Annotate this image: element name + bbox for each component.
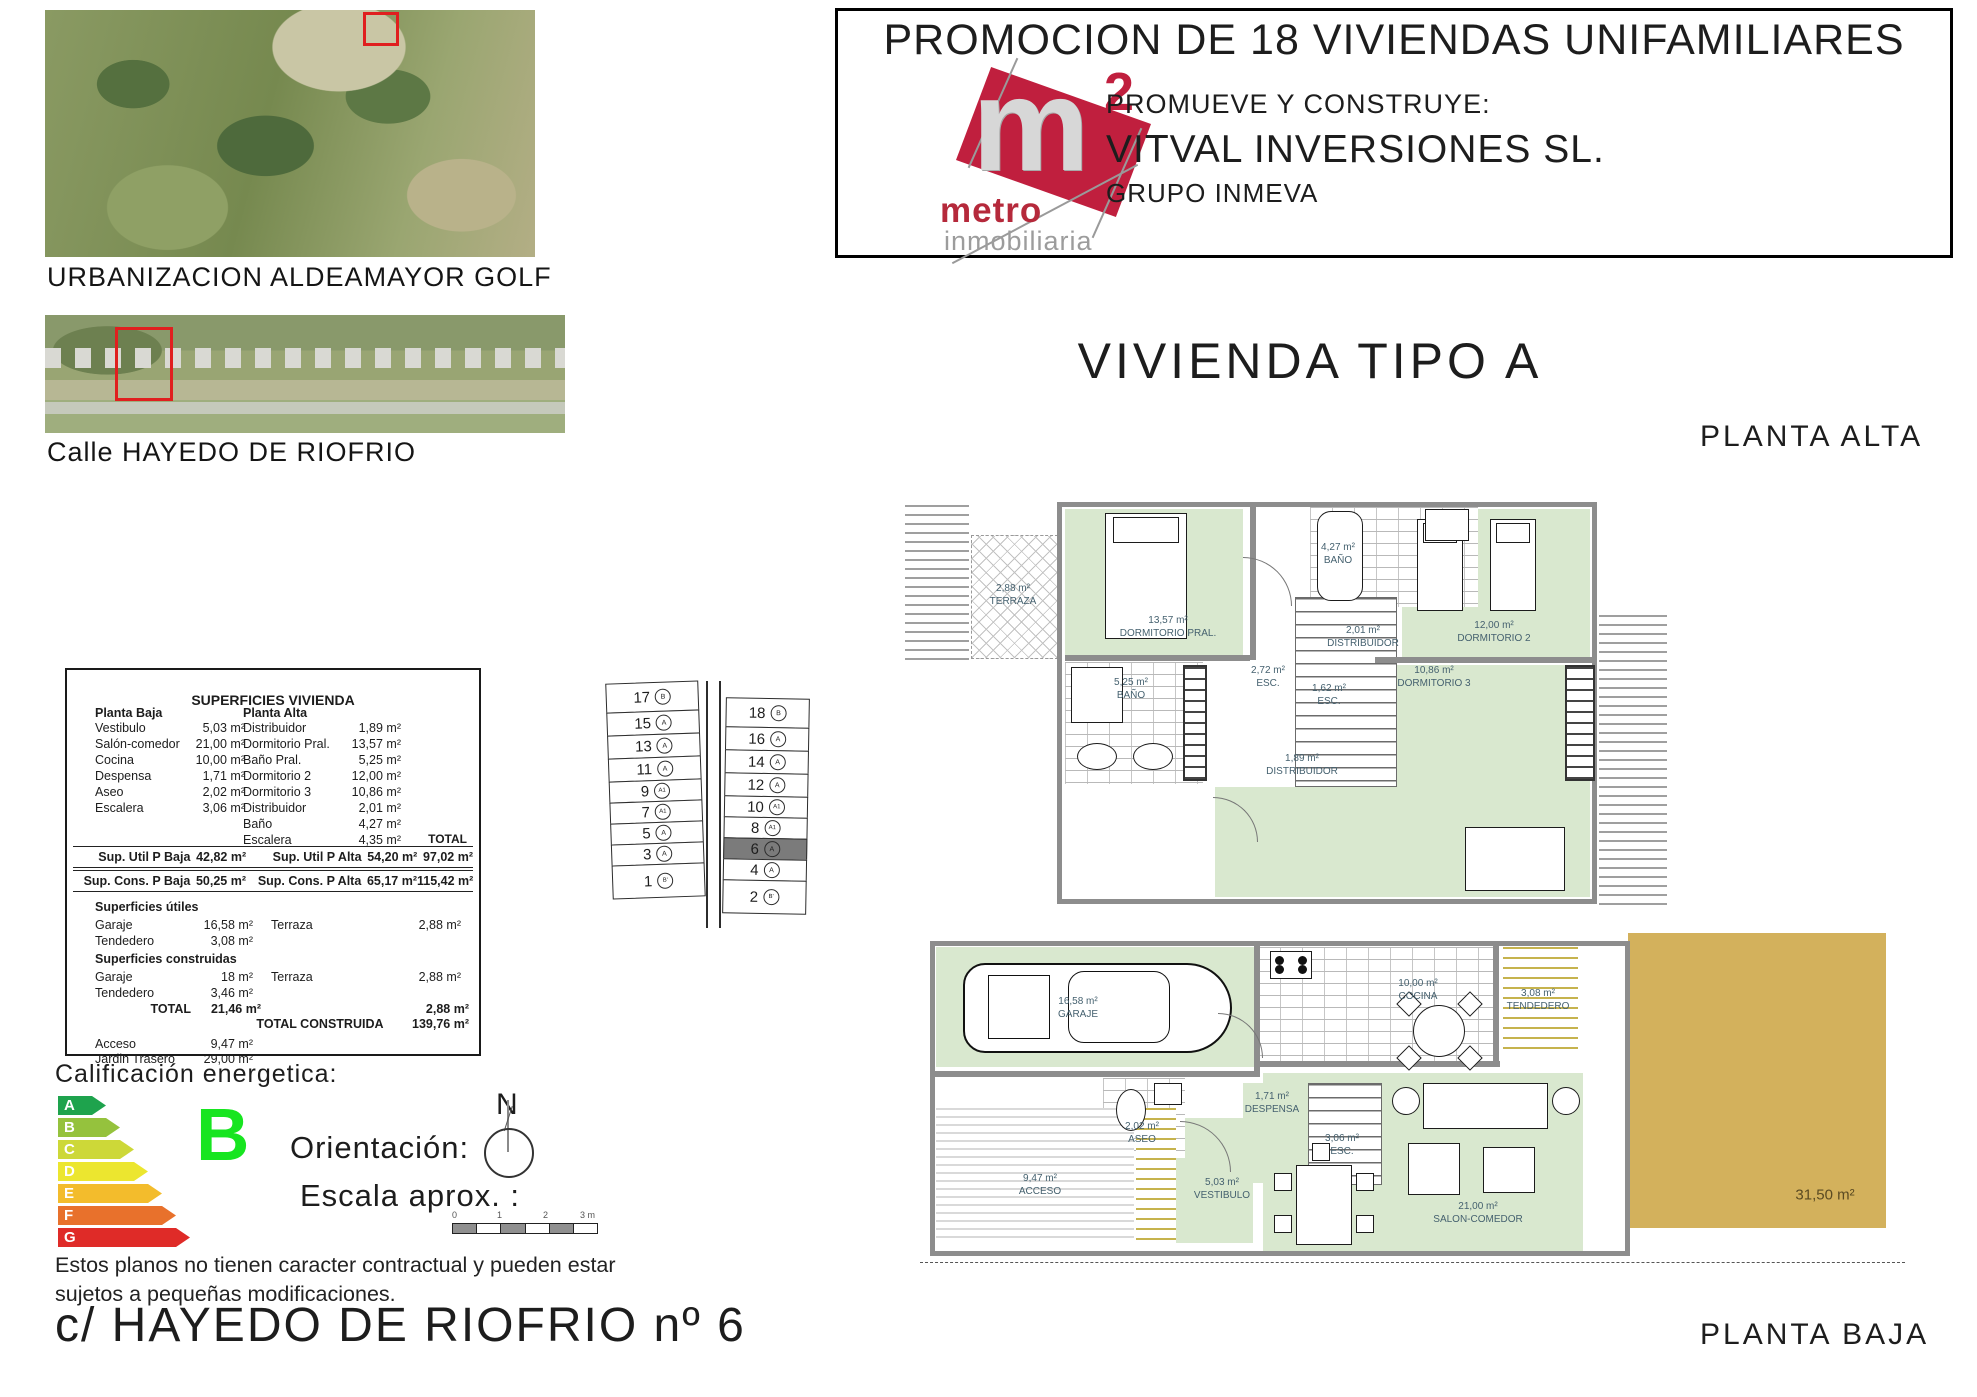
- energy-rating-letter: B: [196, 1098, 249, 1172]
- roof-hatch: [1599, 615, 1667, 905]
- chair-icon: [1274, 1173, 1292, 1191]
- lot-number: 7: [641, 804, 650, 821]
- table-right-value: 10,86 m²: [352, 784, 401, 800]
- util-left-label: Sup. Util P Baja: [73, 848, 190, 866]
- total-value: 21,46 m²: [199, 1001, 261, 1017]
- acceso-row: Acceso 9,47 m²: [95, 1036, 469, 1052]
- cons-left-label: Sup. Cons. P Baja: [73, 872, 190, 890]
- total-label: TOTAL: [95, 1001, 199, 1017]
- construidas-tendedero-label: Tendedero: [95, 985, 191, 1001]
- room-area-value: 21,00 m²: [1433, 1200, 1522, 1213]
- room-name: ESC.: [1325, 1145, 1359, 1158]
- lot-type-badge: B: [770, 705, 786, 721]
- pillow-icon: [1113, 517, 1179, 543]
- utiles-tendedero-label: Tendedero: [95, 933, 191, 949]
- armchair-icon: [1408, 1143, 1460, 1195]
- room-area-value: 1,62 m²: [1312, 682, 1346, 695]
- lot-number: 12: [747, 776, 764, 793]
- lot-type-badge: B: [655, 688, 672, 705]
- compass-icon: [484, 1128, 534, 1178]
- lots-right-column: 18B16A14A12A10A18A16A4A2B': [722, 698, 810, 914]
- coffee-table-icon: [1483, 1147, 1535, 1193]
- table-right-value: 12,00 m²: [352, 768, 401, 784]
- chair-icon: [1274, 1215, 1292, 1233]
- lot-number: 6: [750, 840, 759, 857]
- lot-type-badge: A: [657, 760, 674, 777]
- room-label-aseo: 2,02 m²ASEO: [1125, 1120, 1159, 1146]
- room-name: DESPENSA: [1245, 1103, 1299, 1116]
- room-name: GARAJE: [1058, 1008, 1098, 1021]
- toilet-icon: [1077, 743, 1117, 770]
- room-name: ASEO: [1125, 1133, 1159, 1146]
- lot-cell-12: 12A: [724, 772, 808, 797]
- construidas-terraza-value: 2,88 m²: [391, 969, 461, 985]
- room-area-value: 2,88 m²: [990, 582, 1037, 595]
- table-right-row: Distribuidor2,01 m²: [243, 800, 401, 816]
- spacer: [253, 1036, 391, 1052]
- photo1-caption: URBANIZACION ALDEAMAYOR GOLF: [47, 262, 552, 293]
- lot-type-badge: B': [763, 889, 779, 905]
- energy-band-F: F: [58, 1206, 176, 1225]
- room-label-esc-: 3,06 m²ESC.: [1325, 1132, 1359, 1158]
- spacer: [253, 933, 391, 949]
- room-name: DORMITORIO 3: [1397, 677, 1470, 690]
- table-right-row: Dormitorio 310,86 m²: [243, 784, 401, 800]
- energy-rating-title: Calificación energetica:: [55, 1060, 337, 1089]
- planta-alta-label: PLANTA ALTA: [1700, 420, 1923, 454]
- room-name: TERRAZA: [990, 595, 1037, 608]
- lot-cell-2: 2B': [722, 879, 807, 914]
- utiles-heading: Superficies útiles: [95, 900, 199, 914]
- table-left-label: Escalera: [95, 800, 144, 816]
- highlight-box-plot: [363, 12, 399, 46]
- util-right-label: Sup. Util P Alta: [246, 848, 361, 866]
- sink-icon: [1425, 509, 1469, 541]
- utiles-row: Garaje 16,58 m² Terraza 2,88 m²: [95, 917, 469, 933]
- room-label-esc-: 2,72 m²ESC.: [1251, 664, 1285, 690]
- table-right-label: Distribuidor: [243, 720, 306, 736]
- lot-number: 14: [748, 753, 765, 770]
- room-name: ESC.: [1251, 677, 1285, 690]
- lot-cell-6: 6A: [723, 837, 807, 860]
- logo-tagline-text: inmobiliaria: [944, 226, 1093, 257]
- room-name: DISTRIBUIDOR: [1327, 637, 1399, 650]
- room-name: TENDEDERO: [1507, 1000, 1570, 1013]
- lot-number: 16: [748, 730, 765, 747]
- grand-total-label: TOTAL CONSTRUIDA: [256, 1017, 383, 1031]
- util-total-row: Sup. Util P Baja 42,82 m² Sup. Util P Al…: [73, 848, 473, 866]
- table-right-row: Baño4,27 m²: [243, 816, 401, 832]
- header-box: PROMOCION DE 18 VIVIENDAS UNIFAMILIARES …: [835, 8, 1953, 258]
- wall: [930, 1071, 1260, 1077]
- lot-cell-4: 4A: [723, 858, 807, 881]
- property-boundary-line: [920, 1262, 1905, 1263]
- table-right-value: 1,89 m²: [359, 720, 401, 736]
- room-area-value: 3,06 m²: [1325, 1132, 1359, 1145]
- planta-baja-floorplan: 16,58 m²GARAJE10,00 m²COCINA3,08 m²TENDE…: [918, 933, 1908, 1263]
- lot-number: 10: [747, 798, 764, 815]
- lot-cell-1: 1B': [612, 862, 706, 899]
- promoter-label: PROMUEVE Y CONSTRUYE:: [1106, 89, 1605, 120]
- lot-number: 1: [644, 873, 653, 890]
- room-area-value: 16,58 m²: [1058, 995, 1098, 1008]
- construidas-garaje-value: 18 m²: [191, 969, 253, 985]
- room-label-salon-comedor: 21,00 m²SALON-COMEDOR: [1433, 1200, 1522, 1226]
- cons-left-value: 50,25 m²: [190, 872, 246, 890]
- table-right-row: Distribuidor1,89 m²: [243, 720, 401, 736]
- lot-cell-18: 18B: [725, 697, 810, 728]
- construidas-row: Garaje 18 m² Terraza 2,88 m²: [95, 969, 469, 985]
- utiles-row: Tendedero 3,08 m²: [95, 933, 469, 949]
- table-left-value: 10,00 m²: [196, 752, 245, 768]
- construidas-heading: Superficies construidas: [95, 952, 237, 966]
- terraza-total-value: 2,88 m²: [399, 1001, 469, 1017]
- table-right-label: Dormitorio 3: [243, 784, 311, 800]
- scale-segment: [477, 1224, 501, 1233]
- scale-bar: 0123 m: [452, 1210, 598, 1240]
- table-left-label: Aseo: [95, 784, 124, 800]
- room-name: SALON-COMEDOR: [1433, 1213, 1522, 1226]
- room-area-value: 1,89 m²: [1266, 752, 1338, 765]
- scale-tick: 1: [497, 1210, 502, 1220]
- stove-icon: [1270, 951, 1312, 979]
- lot-number: 3: [643, 846, 652, 863]
- table-left-value: 21,00 m²: [196, 736, 245, 752]
- table-left-row: Aseo2,02 m²: [95, 784, 245, 800]
- road-line: [719, 681, 721, 928]
- divider: [73, 891, 473, 892]
- lot-number: 8: [751, 819, 760, 836]
- room-label-dormitorio-pral-: 13,57 m²DORMITORIO PRAL.: [1120, 614, 1217, 640]
- lots-left-column: 17B15A13A11A9A17A15A3A1B': [605, 681, 705, 899]
- room-label-dormitorio-3: 10,86 m²DORMITORIO 3: [1397, 664, 1470, 690]
- lot-type-badge: A1: [654, 782, 671, 799]
- table-left-value: 5,03 m²: [203, 720, 245, 736]
- dining-table-icon: [1296, 1165, 1352, 1245]
- room-label-esc-: 1,62 m²ESC.: [1312, 682, 1346, 708]
- lot-number: 4: [750, 861, 759, 878]
- lot-number: 2: [750, 888, 759, 905]
- utiles-terraza-value: 2,88 m²: [391, 917, 461, 933]
- roof-hatch: [905, 505, 969, 660]
- room-label-acceso: 9,47 m²ACCESO: [1019, 1172, 1061, 1198]
- table-left-row: Escalera3,06 m²: [95, 800, 245, 816]
- promoter-block: PROMUEVE Y CONSTRUYE: VITVAL INVERSIONES…: [1106, 89, 1605, 209]
- planta-baja-rows: Vestibulo5,03 m²Salón-comedor21,00 m²Coc…: [95, 720, 245, 816]
- room-label-vestibulo: 5,03 m²VESTIBULO: [1194, 1176, 1250, 1202]
- energy-band-D: D: [58, 1162, 148, 1181]
- bidet-icon: [1133, 743, 1173, 770]
- jardin-trasero-area: [1628, 933, 1886, 1228]
- room-label-terraza: 2,88 m²TERRAZA: [990, 582, 1037, 608]
- scale-segments: [452, 1223, 598, 1234]
- room-label-despensa: 1,71 m²DESPENSA: [1245, 1090, 1299, 1116]
- table-right-value: 5,25 m²: [359, 752, 401, 768]
- table-left-value: 3,06 m²: [203, 800, 245, 816]
- disclaimer-line1: Estos planos no tienen caracter contract…: [55, 1251, 616, 1280]
- room-name: BAÑO: [1321, 554, 1355, 567]
- logo-letter-m: m: [972, 59, 1089, 191]
- energy-band-C: C: [58, 1140, 134, 1159]
- room-label-distribuidor: 2,01 m²DISTRIBUIDOR: [1327, 624, 1399, 650]
- scale-segment: [453, 1224, 477, 1233]
- construidas-row: Tendedero 3,46 m²: [95, 985, 469, 1001]
- divider: [73, 867, 473, 868]
- table-left-row: Cocina10,00 m²: [95, 752, 245, 768]
- room-label-cocina: 10,00 m²COCINA: [1398, 977, 1437, 1003]
- table-left-value: 2,02 m²: [203, 784, 245, 800]
- lot-type-badge: A: [657, 737, 674, 754]
- lot-cell-14: 14A: [725, 749, 809, 774]
- planta-alta-rows: Distribuidor1,89 m²Dormitorio Pral.13,57…: [243, 720, 401, 848]
- lot-number: 11: [636, 761, 652, 779]
- grand-total-value: 139,76 m²: [412, 1017, 469, 1031]
- table-right-row: Dormitorio 212,00 m²: [243, 768, 401, 784]
- room-name: DISTRIBUIDOR: [1266, 765, 1338, 778]
- lot-type-badge: A: [656, 845, 673, 862]
- spacer: [391, 985, 461, 1001]
- table-right-value: 13,57 m²: [352, 736, 401, 752]
- utiles-garaje-label: Garaje: [95, 917, 191, 933]
- scale-tick: 3 m: [580, 1210, 595, 1220]
- wall: [1375, 657, 1593, 663]
- lot-cell-10: 10A1: [724, 795, 808, 818]
- lot-type-badge: A: [770, 731, 786, 747]
- photo2-caption: Calle HAYEDO DE RIOFRIO: [47, 437, 416, 468]
- wall: [1065, 655, 1250, 661]
- sofa-icon: [1423, 1083, 1548, 1129]
- sink-icon: [1154, 1083, 1182, 1105]
- aerial-photo-street: [45, 315, 565, 433]
- col-header-planta-baja: Planta Baja: [95, 706, 162, 720]
- scale-label: Escala aprox. :: [300, 1178, 520, 1214]
- room-area-value: 2,01 m²: [1327, 624, 1399, 637]
- scale-tick: 2: [543, 1210, 548, 1220]
- total-row: TOTAL 21,46 m² 2,88 m²: [95, 1001, 469, 1017]
- util-right-value: 54,20 m²: [362, 848, 418, 866]
- room-name: ESC.: [1312, 695, 1346, 708]
- lot-type-badge: A1: [764, 820, 780, 836]
- room-area-value: 10,86 m²: [1397, 664, 1470, 677]
- scale-segment: [550, 1224, 574, 1233]
- room-area-value: 1,71 m²: [1245, 1090, 1299, 1103]
- promoter-name: VITVAL INVERSIONES SL.: [1106, 128, 1605, 172]
- pillow-icon: [1496, 523, 1530, 543]
- side-table-icon: [1392, 1087, 1420, 1115]
- chair-icon: [1356, 1215, 1374, 1233]
- distribuidor2-floor: [1215, 787, 1395, 897]
- table-right-label: Dormitorio 2: [243, 768, 311, 784]
- cons-right-label: Sup. Cons. P Alta: [246, 872, 361, 890]
- table-left-row: Vestibulo5,03 m²: [95, 720, 245, 736]
- bed-icon: [1465, 827, 1565, 891]
- utiles-tendedero-value: 3,08 m²: [191, 933, 253, 949]
- table-left-label: Cocina: [95, 752, 134, 768]
- energy-band-E: E: [58, 1184, 162, 1203]
- room-area-value: 5,25 m²: [1114, 676, 1148, 689]
- highlight-box-houses: [115, 327, 173, 401]
- room-label-garaje: 16,58 m²GARAJE: [1058, 995, 1098, 1021]
- spacer: [391, 1051, 461, 1067]
- lot-type-badge: A: [764, 841, 780, 857]
- room-label-dormitorio-2: 12,00 m²DORMITORIO 2: [1457, 619, 1530, 645]
- room-name: BAÑO: [1114, 689, 1148, 702]
- lot-number: 17: [633, 689, 650, 707]
- divider: [73, 846, 473, 847]
- table-right-value: 2,01 m²: [359, 800, 401, 816]
- promoter-group: GRUPO INMEVA: [1106, 178, 1605, 209]
- room-area-value: 2,02 m²: [1125, 1120, 1159, 1133]
- closet-icon: [1183, 665, 1207, 781]
- wall: [1493, 941, 1499, 1061]
- room-label-distribuidor: 1,89 m²DISTRIBUIDOR: [1266, 752, 1338, 778]
- energy-band-B: B: [58, 1118, 120, 1137]
- lot-type-badge: A1: [769, 799, 785, 815]
- room-area-value: 2,72 m²: [1251, 664, 1285, 677]
- room-area-value: 10,00 m²: [1398, 977, 1437, 990]
- room-name: VESTIBULO: [1194, 1189, 1250, 1202]
- utiles-terraza-label: Terraza: [253, 917, 391, 933]
- energy-band-A: A: [58, 1096, 106, 1115]
- aerial-photo-urbanization: [45, 10, 535, 257]
- lot-type-badge: A1: [655, 803, 672, 820]
- lot-number: 18: [749, 704, 766, 721]
- grand-total-row: TOTAL CONSTRUIDA 139,76 m²: [256, 1017, 469, 1031]
- table-right-row: Dormitorio Pral.13,57 m²: [243, 736, 401, 752]
- lot-type-badge: A: [769, 777, 785, 793]
- spacer: [391, 1036, 461, 1052]
- divider: [73, 870, 473, 871]
- util-left-value: 42,82 m²: [190, 848, 246, 866]
- table-right-row: Baño Pral.5,25 m²: [243, 752, 401, 768]
- energy-band-chart: ABCDEFG: [58, 1096, 190, 1250]
- room-area-value: 5,03 m²: [1194, 1176, 1250, 1189]
- room-area-value: 3,08 m²: [1507, 987, 1570, 1000]
- utiles-garaje-value: 16,58 m²: [191, 917, 253, 933]
- lot-type-badge: B': [657, 872, 674, 889]
- closet-icon: [1565, 665, 1595, 781]
- orientation-label: Orientación:: [290, 1130, 469, 1166]
- surface-table: SUPERFICIES VIVIENDA Planta Baja Planta …: [65, 668, 481, 1056]
- cons-total-value: 115,42 m²: [417, 872, 473, 890]
- kitchen-table-icon: [1413, 1005, 1465, 1057]
- room-name: ACCESO: [1019, 1185, 1061, 1198]
- street-address: c/ HAYEDO DE RIOFRIO nº 6: [55, 1298, 746, 1353]
- construidas-tendedero-value: 3,46 m²: [191, 985, 253, 1001]
- side-table-icon: [1552, 1087, 1580, 1115]
- lot-type-badge: A: [769, 754, 785, 770]
- room-area-value: 13,57 m²: [1120, 614, 1217, 627]
- room-label-ba-o: 5,25 m²BAÑO: [1114, 676, 1148, 702]
- logo-brand-text: metro: [940, 191, 1042, 231]
- table-right-label: Distribuidor: [243, 800, 306, 816]
- scale-segment: [526, 1224, 550, 1233]
- room-name: COCINA: [1398, 990, 1437, 1003]
- lot-number: 15: [634, 715, 651, 733]
- acceso-label: Acceso: [95, 1036, 191, 1052]
- room-area-value: 12,00 m²: [1457, 619, 1530, 632]
- lot-cell-8: 8A1: [723, 816, 807, 839]
- cons-total-row: Sup. Cons. P Baja 50,25 m² Sup. Cons. P …: [73, 872, 473, 890]
- road-line: [706, 681, 708, 928]
- planta-alta-floorplan: 2,88 m²TERRAZA13,57 m²DORMITORIO PRAL.5,…: [905, 497, 1667, 909]
- car-trunk: [988, 975, 1050, 1039]
- site-plan-diagram: 17B15A13A11A9A17A15A3A1B' 18B16A14A12A10…: [605, 653, 810, 928]
- spacer: [391, 933, 461, 949]
- table-right-label: Baño Pral.: [243, 752, 301, 768]
- table-right-label: Baño: [243, 816, 272, 832]
- total-header: TOTAL: [428, 832, 467, 846]
- room-name: DORMITORIO 2: [1457, 632, 1530, 645]
- table-left-value: 1,71 m²: [203, 768, 245, 784]
- vivienda-title: VIVIENDA TIPO A: [1050, 332, 1570, 390]
- lot-cell-17: 17B: [605, 680, 699, 713]
- room-name: DORMITORIO PRAL.: [1120, 627, 1217, 640]
- table-left-row: Despensa1,71 m²: [95, 768, 245, 784]
- scale-tick: 0: [452, 1210, 457, 1220]
- lot-type-badge: A: [656, 714, 673, 731]
- chair-icon: [1356, 1173, 1374, 1191]
- acceso-value: 9,47 m²: [191, 1036, 253, 1052]
- lot-type-badge: A: [763, 862, 779, 878]
- table-right-label: Dormitorio Pral.: [243, 736, 330, 752]
- room-area-value: 9,47 m²: [1019, 1172, 1061, 1185]
- lot-number: 5: [642, 825, 651, 842]
- table-left-row: Salón-comedor21,00 m²: [95, 736, 245, 752]
- util-total-value: 97,02 m²: [417, 848, 473, 866]
- spacer: [253, 985, 391, 1001]
- lot-cell-16: 16A: [725, 726, 809, 751]
- construidas-terraza-label: Terraza: [253, 969, 391, 985]
- planta-baja-label: PLANTA BAJA: [1700, 1318, 1929, 1352]
- construidas-garaje-label: Garaje: [95, 969, 191, 985]
- table-right-value: 4,27 m²: [359, 816, 401, 832]
- spacer: [261, 1001, 399, 1017]
- table-left-label: Vestibulo: [95, 720, 146, 736]
- lot-number: 9: [641, 783, 650, 800]
- room-label-tendedero: 3,08 m²TENDEDERO: [1507, 987, 1570, 1013]
- room-label-ba-o: 4,27 m²BAÑO: [1321, 541, 1355, 567]
- scale-segment: [574, 1224, 597, 1233]
- scale-segment: [501, 1224, 525, 1233]
- cons-right-value: 65,17 m²: [361, 872, 417, 890]
- jardin-area-value: 31,50 m²: [1795, 1187, 1854, 1204]
- lot-number: 13: [635, 738, 652, 756]
- lot-type-badge: A: [655, 824, 672, 841]
- col-header-planta-alta: Planta Alta: [243, 706, 307, 720]
- table-left-label: Despensa: [95, 768, 151, 784]
- room-area-value: 4,27 m²: [1321, 541, 1355, 554]
- table-left-label: Salón-comedor: [95, 736, 180, 752]
- energy-band-G: G: [58, 1228, 190, 1247]
